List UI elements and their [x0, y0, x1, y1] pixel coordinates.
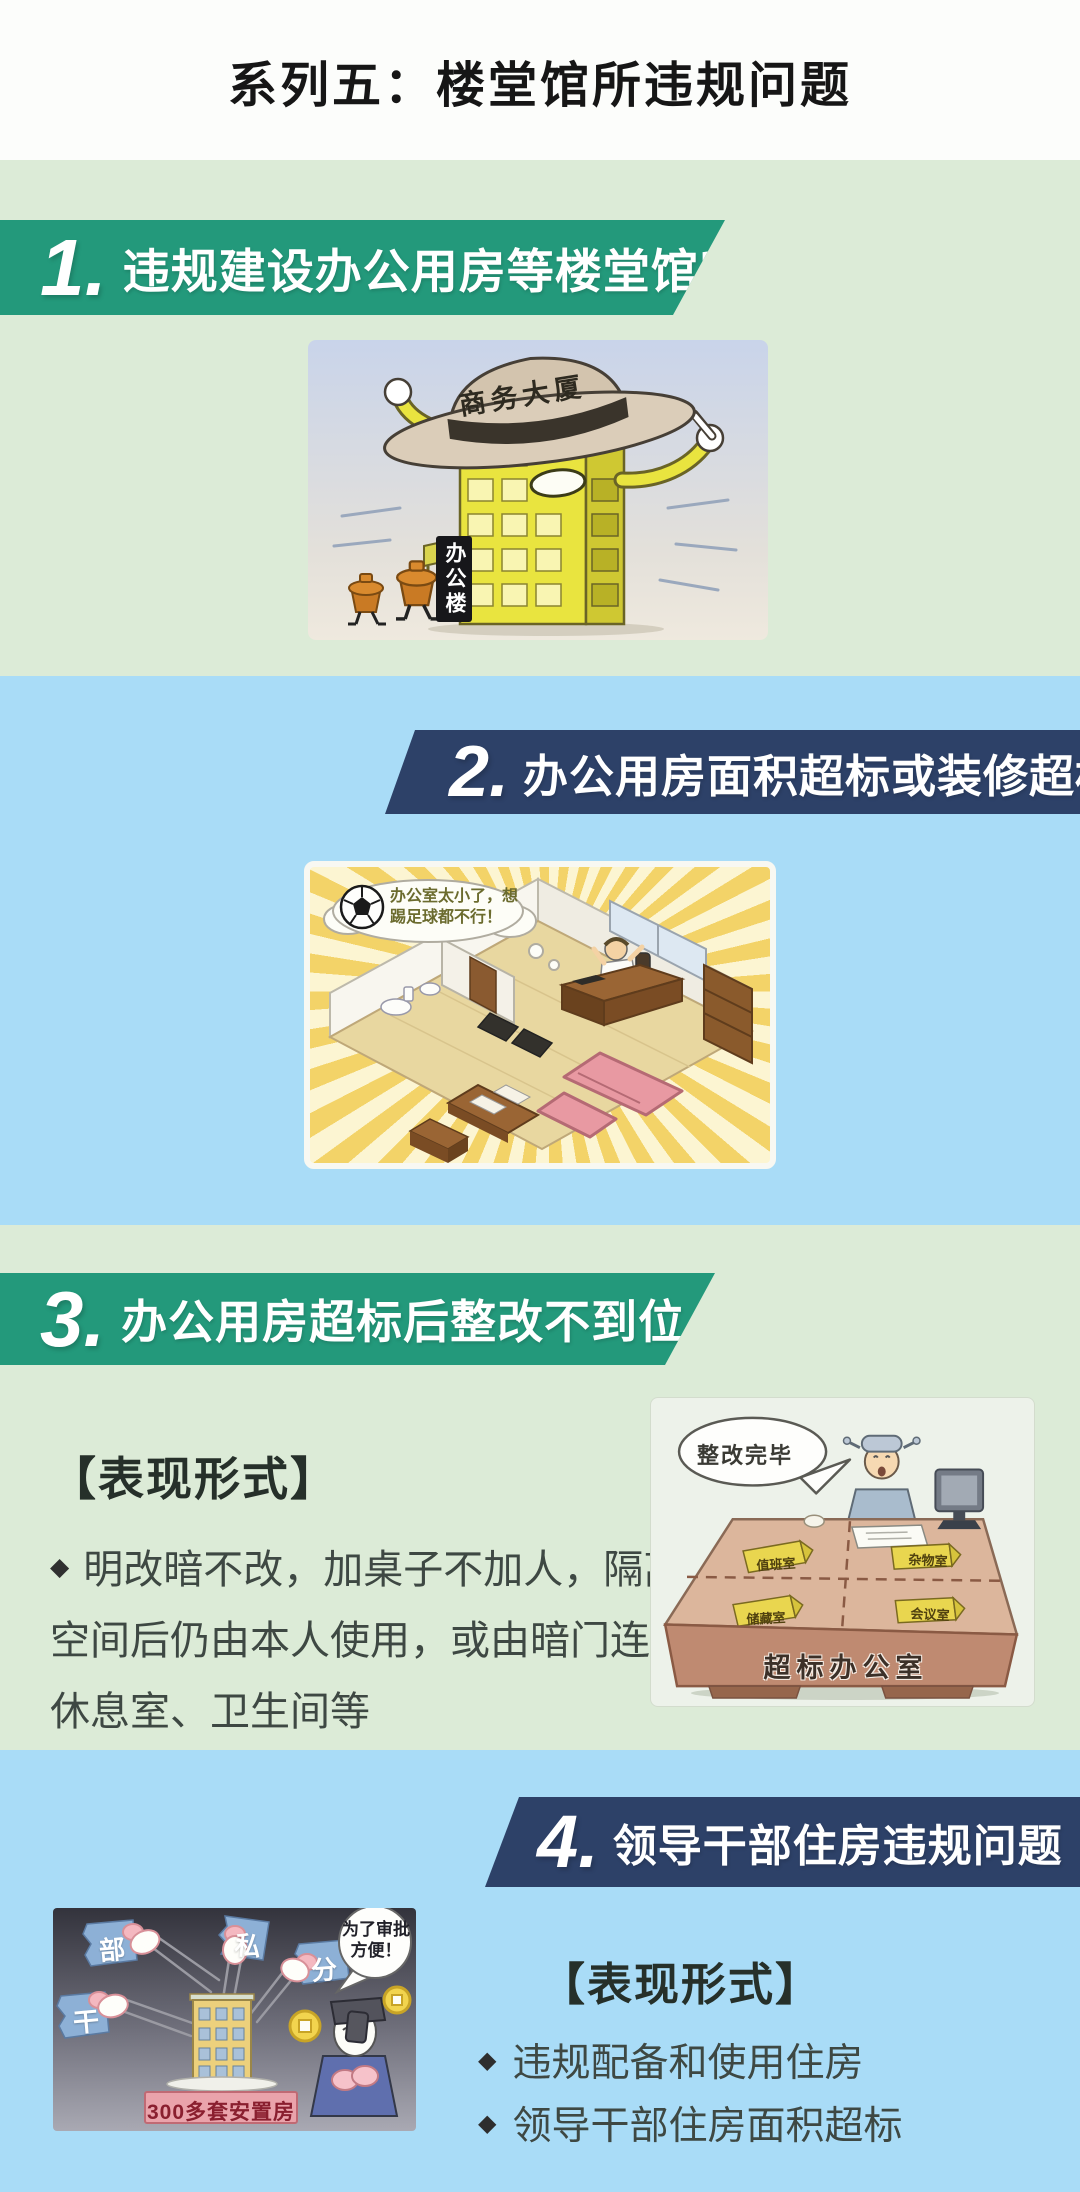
- illustration-oversized-office: 办公室太小了，想踢足球都不行！: [304, 861, 776, 1169]
- bullet-diamond-icon: ◆: [478, 2109, 496, 2138]
- section-1-title: 违规建设办公用房等楼堂馆所: [123, 233, 747, 302]
- resettlement-housing-sign: 300多套安置房: [145, 2096, 297, 2126]
- illustration-divided-desk: 整改完毕 值班室 杂物室 储藏室 会议室 超标办公室: [650, 1397, 1035, 1707]
- section-4: 4. 领导干部住房违规问题: [0, 1750, 1080, 2192]
- page-title: 系列五：楼堂馆所违规问题: [0, 46, 1080, 117]
- manifestation-heading: 【表现形式】: [50, 1443, 338, 1509]
- desk-front-label: 超标办公室: [721, 1646, 971, 1685]
- manifestation-heading: 【表现形式】: [540, 1948, 822, 2013]
- section-2-title: 办公用房面积超标或装修超标: [523, 740, 1080, 805]
- soccer-ball-icon: [341, 886, 383, 928]
- section-4-number: 4.: [537, 1809, 599, 1876]
- thought-bubble-text: 办公室太小了，想踢足球都不行！: [390, 886, 524, 928]
- section-4-title: 领导干部住房违规问题: [613, 1810, 1063, 1874]
- bullet-diamond-icon: ◆: [50, 1553, 69, 1581]
- section-2-banner: 2. 办公用房面积超标或装修超标: [385, 730, 1080, 814]
- flag-char-fen: 分: [310, 1949, 339, 1988]
- bullet-item: ◆ 领导干部住房面积超标: [478, 2095, 902, 2151]
- coin-icon: [290, 2011, 320, 2041]
- bullet-text: 领导干部住房面积超标: [512, 2095, 902, 2151]
- section-1: 1. 违规建设办公用房等楼堂馆所: [0, 160, 1080, 676]
- section-3-title: 办公用房超标后整改不到位: [121, 1286, 685, 1352]
- bullet-text: 违规配备和使用住房: [512, 2032, 863, 2088]
- section-4-banner: 4. 领导干部住房违规问题: [485, 1797, 1080, 1887]
- desk-sign-label-4: 会议室: [901, 1602, 960, 1624]
- section-1-banner: 1. 违规建设办公用房等楼堂馆所: [0, 220, 725, 315]
- speech-bubble-text: 整改完毕: [697, 1438, 817, 1470]
- seal-figure-large: [396, 561, 440, 619]
- section-3: 3. 办公用房超标后整改不到位 【表现形式】 ◆明改暗不改，加桌子不加人，隔离空…: [0, 1225, 1080, 1750]
- illustration-building-with-hat: 商务大厦 办公楼: [308, 340, 768, 640]
- bullet-diamond-icon: ◆: [478, 2046, 496, 2075]
- desk-sign-label-3: 储藏室: [737, 1606, 796, 1628]
- flag-char-bu: 部: [97, 1929, 126, 1968]
- desk-sign-label-2: 杂物室: [899, 1548, 958, 1570]
- seal-figure-small: [348, 574, 386, 624]
- section-3-number: 3.: [40, 1284, 105, 1354]
- flag-char-si: 私: [233, 1925, 263, 1965]
- office-building-sign: 办公楼: [436, 536, 472, 622]
- section-3-banner: 3. 办公用房超标后整改不到位: [0, 1273, 715, 1365]
- flag-char-gan: 干: [71, 2001, 100, 2040]
- office-room-drawing: [310, 867, 770, 1163]
- manifestation-text: 明改暗不改，加桌子不加人，隔离空间后仍由本人使用，或由暗门连接休息室、卫生间等: [50, 1548, 690, 1734]
- desk-sign-label-1: 值班室: [746, 1552, 805, 1575]
- manifestation-paragraph: ◆明改暗不改，加桌子不加人，隔离空间后仍由本人使用，或由暗门连接休息室、卫生间等: [50, 1532, 714, 1748]
- official-speech-bubble-text: 为了审批方便！: [341, 1919, 411, 1961]
- illustration-housing-violation: 部 干 私 分 300多套安置房 为了审批方便！: [53, 1908, 416, 2131]
- coin-icon: [384, 1987, 410, 2013]
- bullet-item: ◆ 违规配备和使用住房: [478, 2032, 863, 2088]
- section-1-number: 1.: [40, 232, 107, 304]
- poster: 系列五：楼堂馆所违规问题 1. 违规建设办公用房等楼堂馆所: [0, 0, 1080, 2192]
- section-2: 2. 办公用房面积超标或装修超标: [0, 676, 1080, 1225]
- section-2-number: 2.: [449, 740, 509, 805]
